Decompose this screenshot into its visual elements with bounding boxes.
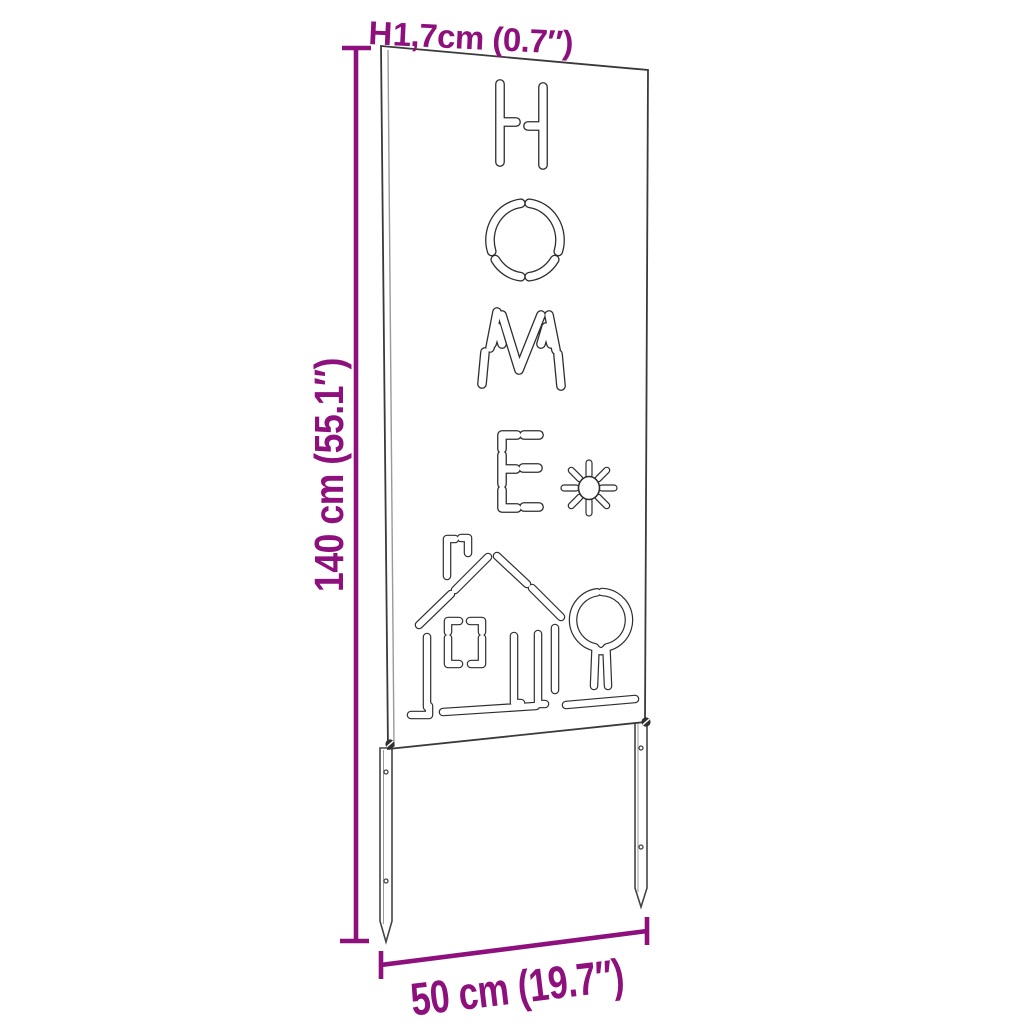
right-screw — [641, 717, 650, 726]
thickness-bracket-icon: H — [368, 14, 393, 52]
width-dimension: 50 cm (19.7″) — [381, 917, 647, 1024]
sun-icon — [564, 463, 614, 513]
height-dimension-label: 140 cm (55.1″) — [306, 358, 352, 592]
diagram-canvas: 140 cm (55.1″) H1,7cm (0.7″) 50 cm (19.7… — [0, 0, 1024, 1024]
product-dimension-diagram: 140 cm (55.1″) H1,7cm (0.7″) 50 cm (19.7… — [0, 0, 1024, 1024]
left-ground-stake — [380, 748, 392, 942]
width-dimension-label: 50 cm (19.7″) — [408, 949, 627, 1024]
left-screw — [385, 739, 394, 748]
right-ground-stake — [635, 721, 647, 907]
height-dimension: 140 cm (55.1″) — [306, 48, 371, 941]
